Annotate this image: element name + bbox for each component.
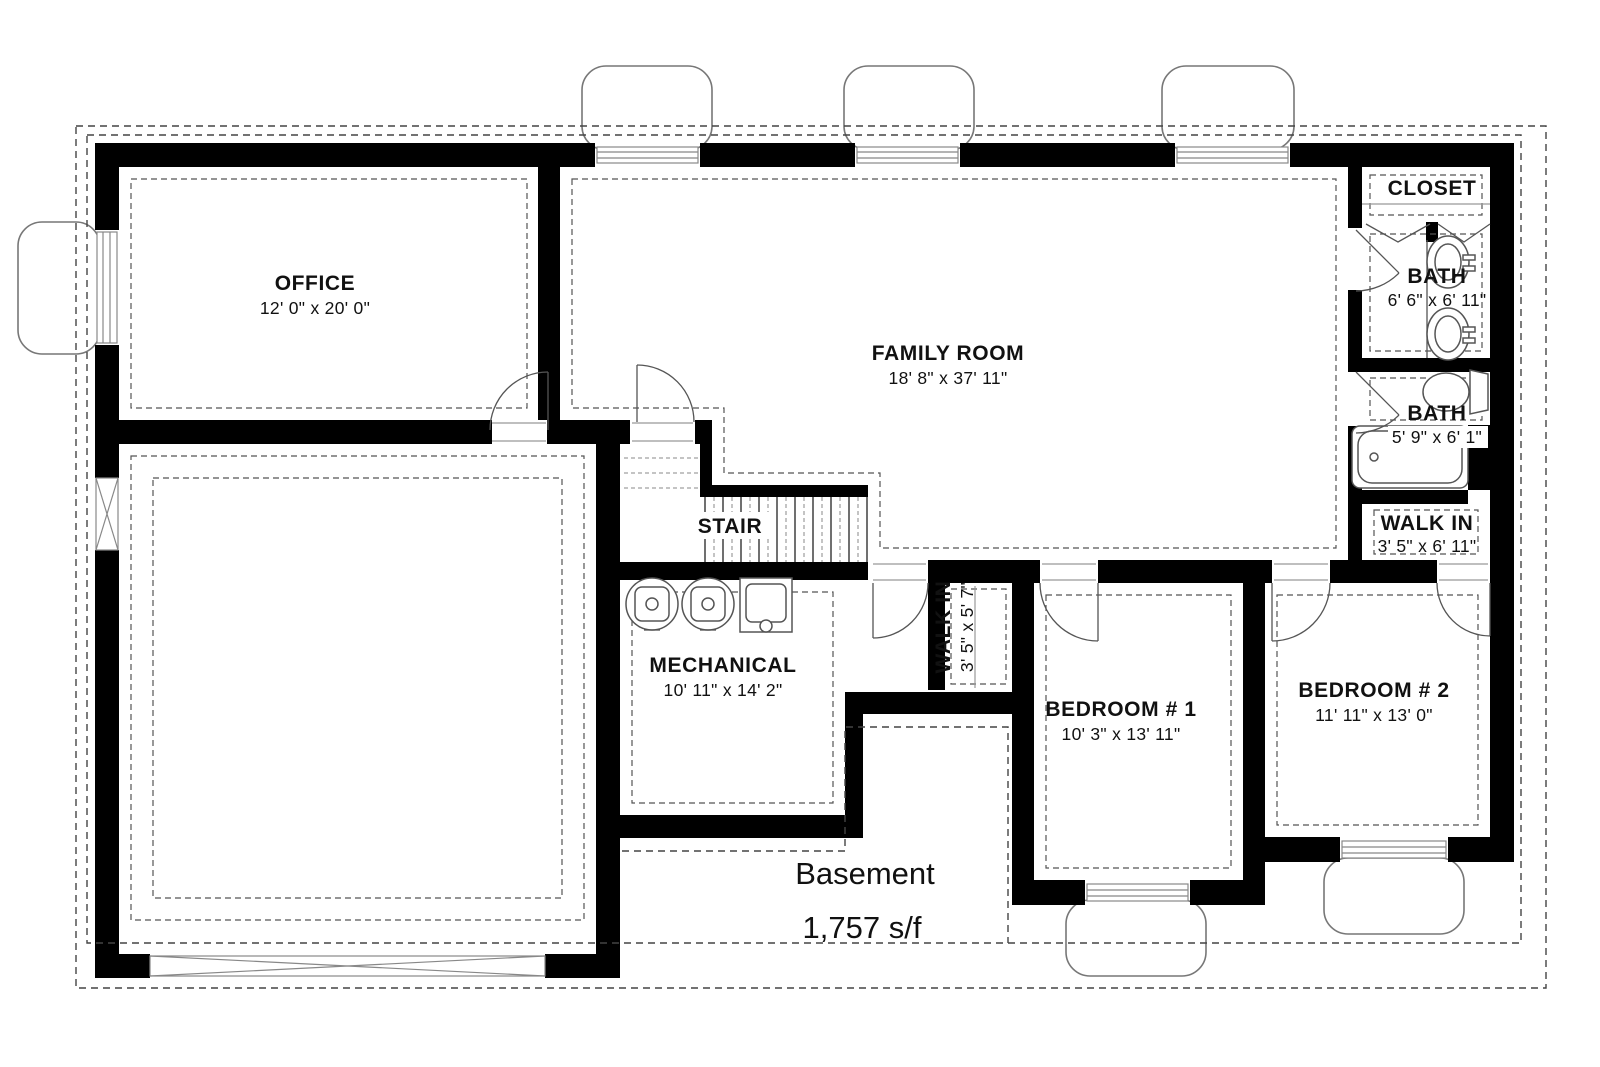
inset-big-room-outer <box>131 456 584 920</box>
closet-label: CLOSET <box>1388 177 1477 200</box>
sink-2 <box>1427 308 1475 360</box>
door-mechanical <box>873 564 928 638</box>
room-closet: CLOSET <box>1388 177 1477 200</box>
room-stair: STAIR <box>686 512 774 539</box>
plan-title-block: Basement 1,757 s/f <box>795 856 935 945</box>
window-office-left <box>97 232 117 343</box>
mechanical-label: MECHANICAL <box>649 654 796 677</box>
glass-strip-bottom <box>150 956 545 976</box>
door-stair-top <box>632 365 694 441</box>
floor-plan-page: OFFICE 12' 0" x 20' 0" FAMILY ROOM 18' 8… <box>0 0 1600 1067</box>
room-walk-in-right: WALK IN 3' 5" x 6' 11" <box>1378 512 1477 556</box>
window-top-2 <box>857 147 958 163</box>
door-bedroom-1 <box>1040 564 1098 641</box>
window-well-top-1 <box>582 66 712 150</box>
walk-in-vertical-label: WALK IN <box>932 581 955 674</box>
office-dims: 12' 0" x 20' 0" <box>260 298 370 318</box>
bath-1-dims: 6' 6" x 6' 11" <box>1388 290 1487 310</box>
walk-in-vertical-dims: 3' 5" x 5' 7" <box>957 582 977 672</box>
bedroom-2-dims: 11' 11" x 13' 0" <box>1315 705 1433 725</box>
bath-2-label: BATH <box>1407 402 1466 425</box>
window-bedroom-1 <box>1087 884 1188 901</box>
room-bedroom-2: BEDROOM # 2 11' 11" x 13' 0" <box>1298 679 1449 725</box>
plan-area: 1,757 s/f <box>803 910 922 945</box>
stair-landing-treads <box>624 458 698 488</box>
room-mechanical: MECHANICAL 10' 11" x 14' 2" <box>649 654 796 700</box>
window-well-bedroom-1 <box>1066 900 1206 976</box>
room-family-room: FAMILY ROOM 18' 8" x 37' 11" <box>872 342 1024 388</box>
door-bath-2 <box>1356 372 1399 433</box>
bath-1-label: BATH <box>1407 265 1466 288</box>
window-top-3 <box>1177 147 1288 163</box>
bedroom-2-label: BEDROOM # 2 <box>1298 679 1449 702</box>
bedroom-1-dims: 10' 3" x 13' 11" <box>1062 724 1181 744</box>
room-bedroom-1: BEDROOM # 1 10' 3" x 13' 11" <box>1045 698 1196 744</box>
door-bedroom-2 <box>1272 564 1330 641</box>
window-well-top-3 <box>1162 66 1294 150</box>
office-label: OFFICE <box>275 272 356 295</box>
stair-label: STAIR <box>698 515 762 538</box>
water-heater-1 <box>626 578 678 630</box>
walk-in-right-label: WALK IN <box>1381 512 1474 535</box>
walk-in-right-dims: 3' 5" x 6' 11" <box>1378 536 1477 556</box>
fixtures <box>626 204 1490 688</box>
bedroom-1-label: BEDROOM # 1 <box>1045 698 1196 721</box>
window-well-top-2 <box>844 66 974 150</box>
room-office: OFFICE 12' 0" x 20' 0" <box>260 272 370 318</box>
room-walk-in-vertical: WALK IN 3' 5" x 5' 7" <box>932 581 977 674</box>
window-well-bedroom-2 <box>1324 858 1464 934</box>
furnace <box>740 578 792 632</box>
room-labels: OFFICE 12' 0" x 20' 0" FAMILY ROOM 18' 8… <box>260 177 1488 945</box>
mechanical-dims: 10' 11" x 14' 2" <box>664 680 783 700</box>
family-room-label: FAMILY ROOM <box>872 342 1024 365</box>
water-heater-2 <box>682 578 734 630</box>
floor-plan-drawing: OFFICE 12' 0" x 20' 0" FAMILY ROOM 18' 8… <box>0 0 1600 1067</box>
window-bedroom-2 <box>1342 841 1446 858</box>
plan-title: Basement <box>795 856 935 891</box>
door-walk-in-right <box>1437 564 1490 636</box>
window-top-1 <box>597 147 698 163</box>
window-x-left <box>96 478 118 550</box>
bath-2-dims: 5' 9" x 6' 1" <box>1392 427 1482 447</box>
family-room-dims: 18' 8" x 37' 11" <box>889 368 1008 388</box>
inset-big-room-inner <box>153 478 562 898</box>
